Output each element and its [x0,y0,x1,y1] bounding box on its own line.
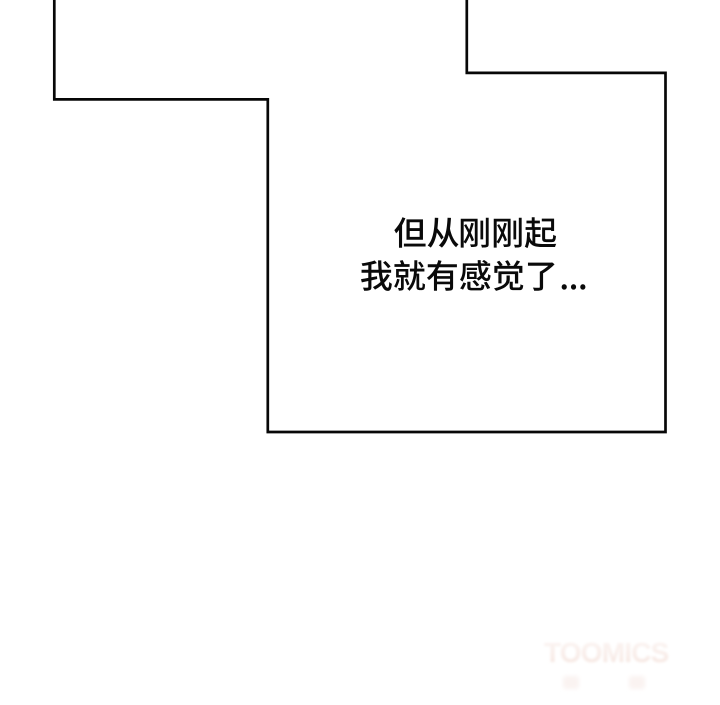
svg-text:TOOMICS: TOOMICS [544,637,669,668]
